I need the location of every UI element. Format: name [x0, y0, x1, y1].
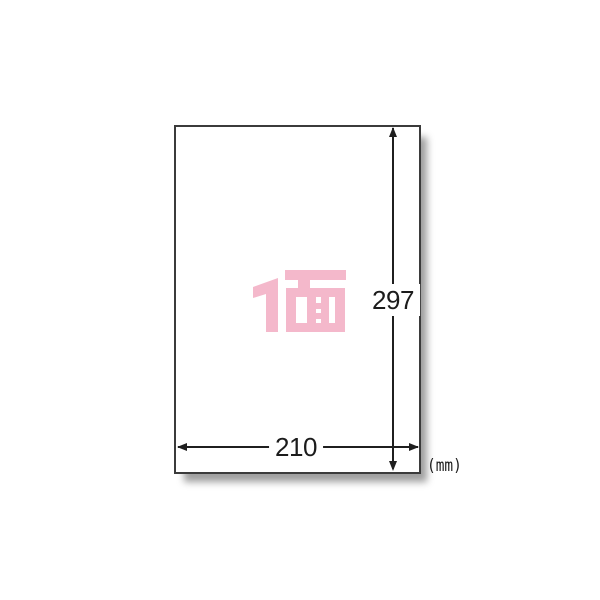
- label-sheet-diagram: 297 210 (mm): [0, 0, 600, 600]
- arrow-left-icon: [177, 443, 187, 451]
- height-dimension-value: 297: [366, 284, 420, 316]
- width-dimension-value: 210: [269, 431, 323, 463]
- arrow-down-icon: [389, 461, 397, 471]
- arrow-up-icon: [389, 127, 397, 137]
- face-count-label: [250, 270, 346, 332]
- unit-label: (mm): [427, 457, 462, 476]
- arrow-right-icon: [409, 443, 419, 451]
- digit-1-glyph: [253, 278, 278, 332]
